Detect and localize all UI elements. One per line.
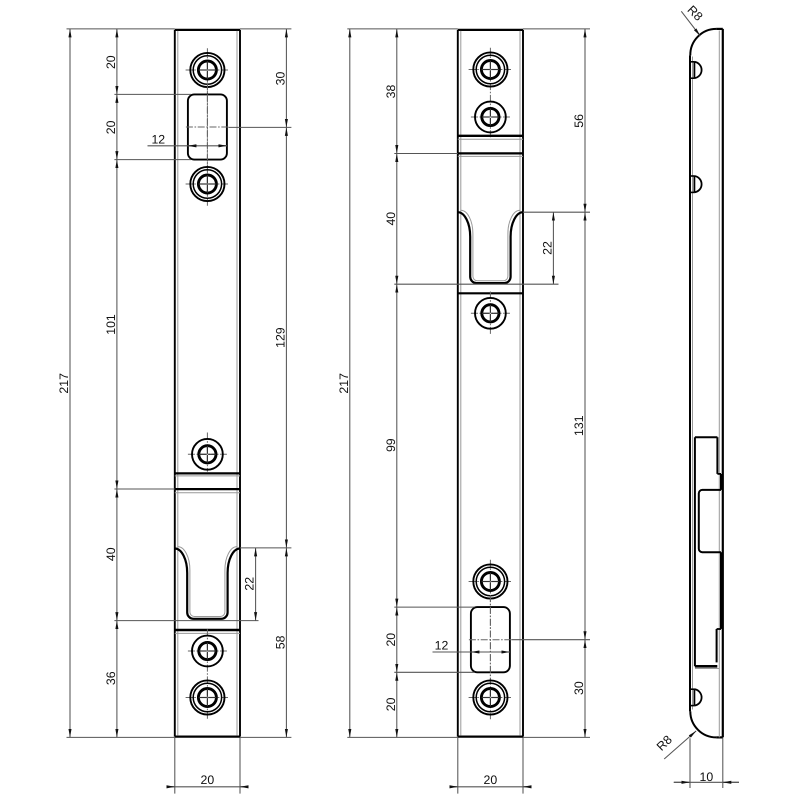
svg-text:30: 30 <box>273 72 287 86</box>
svg-text:20: 20 <box>104 55 118 69</box>
svg-text:101: 101 <box>104 314 118 335</box>
svg-text:12: 12 <box>151 133 165 147</box>
svg-text:56: 56 <box>572 114 586 128</box>
svg-text:20: 20 <box>484 773 498 787</box>
svg-text:38: 38 <box>384 85 398 99</box>
svg-text:217: 217 <box>57 373 71 394</box>
svg-text:30: 30 <box>572 681 586 695</box>
svg-text:131: 131 <box>572 415 586 436</box>
svg-text:20: 20 <box>384 697 398 711</box>
svg-text:129: 129 <box>273 327 287 348</box>
svg-text:22: 22 <box>243 577 257 591</box>
svg-text:36: 36 <box>104 671 118 685</box>
svg-text:20: 20 <box>104 120 118 134</box>
svg-text:10: 10 <box>700 770 714 784</box>
svg-text:40: 40 <box>104 547 118 561</box>
svg-text:22: 22 <box>540 241 554 255</box>
svg-text:217: 217 <box>337 373 351 394</box>
svg-text:20: 20 <box>201 773 215 787</box>
svg-text:12: 12 <box>435 639 449 653</box>
svg-text:20: 20 <box>384 633 398 647</box>
svg-text:40: 40 <box>384 212 398 226</box>
svg-text:99: 99 <box>384 438 398 452</box>
svg-text:58: 58 <box>273 635 287 649</box>
